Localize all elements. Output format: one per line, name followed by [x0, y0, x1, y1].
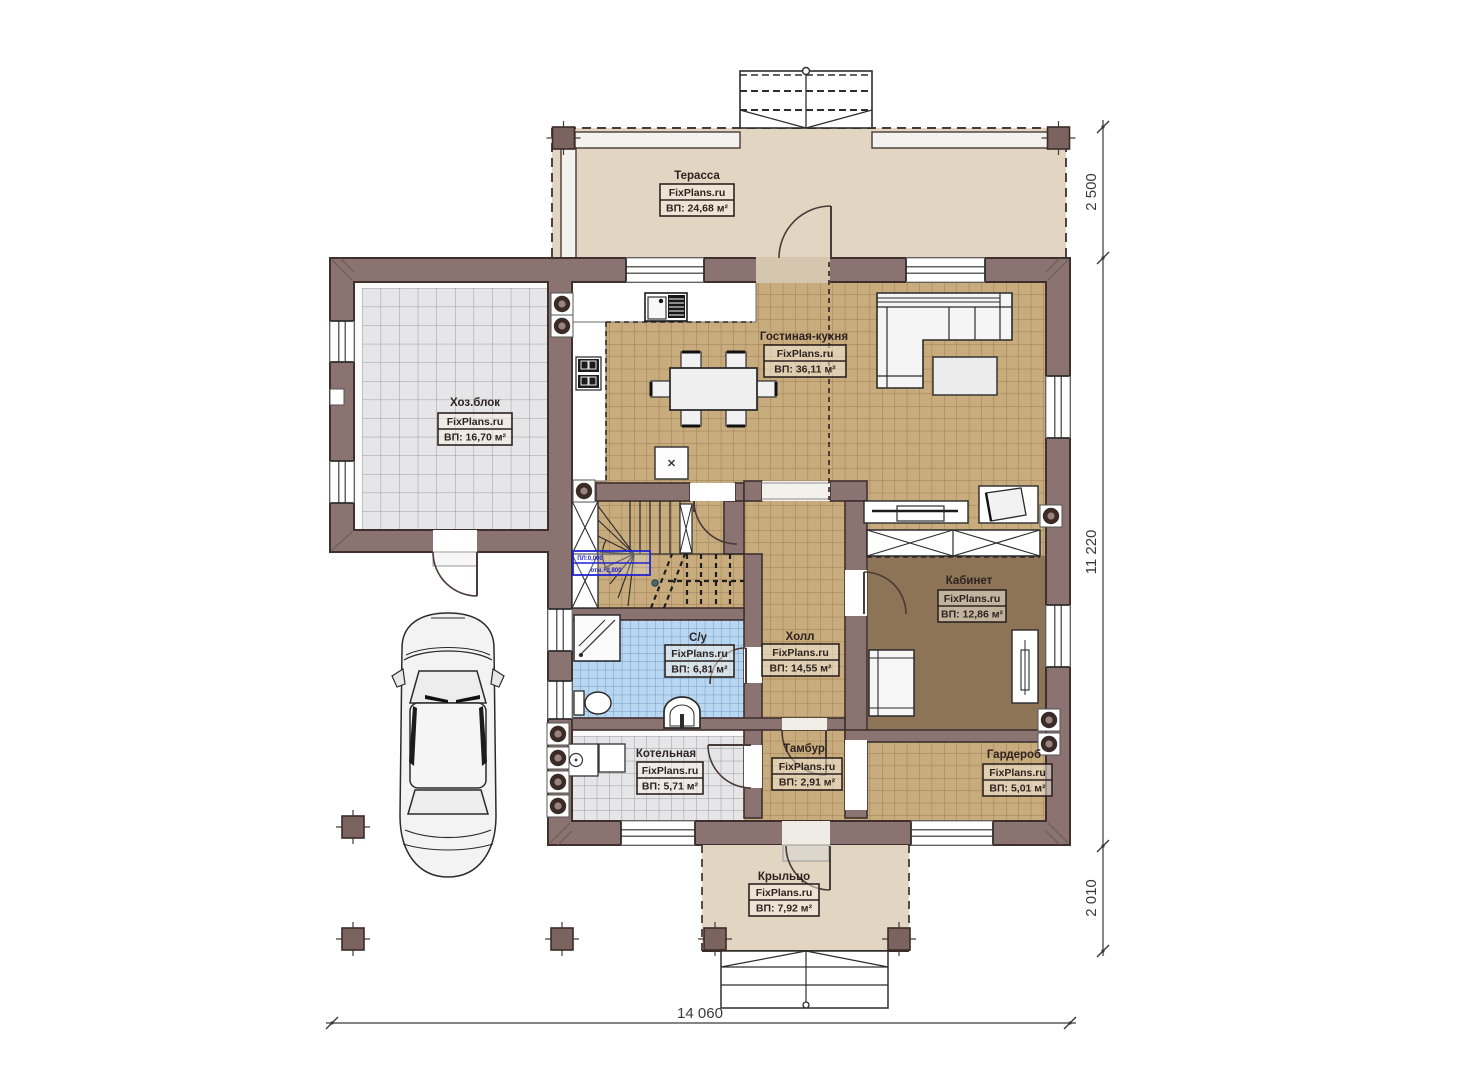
svg-text:FixPlans.ru: FixPlans.ru — [447, 416, 504, 428]
svg-text:FixPlans.ru: FixPlans.ru — [669, 187, 726, 199]
svg-text:Хоз.блок: Хоз.блок — [450, 397, 500, 409]
svg-text:14 060: 14 060 — [677, 1005, 723, 1022]
svg-text:ПЛ:0,000: ПЛ:0,000 — [577, 556, 603, 562]
svg-text:Холл: Холл — [786, 631, 815, 643]
svg-text:С/у: С/у — [689, 632, 708, 644]
svg-text:FixPlans.ru: FixPlans.ru — [642, 765, 699, 777]
svg-text:Кабинет: Кабинет — [946, 575, 993, 587]
svg-text:FixPlans.ru: FixPlans.ru — [777, 348, 834, 360]
svg-text:ВП: 16,70 м²: ВП: 16,70 м² — [444, 432, 507, 444]
svg-text:ВП: 14,55 м²: ВП: 14,55 м² — [769, 663, 832, 675]
svg-text:Гардероб: Гардероб — [987, 749, 1041, 761]
svg-text:Крыльцо: Крыльцо — [758, 871, 810, 883]
svg-text:FixPlans.ru: FixPlans.ru — [989, 767, 1046, 779]
svg-text:FixPlans.ru: FixPlans.ru — [671, 648, 728, 660]
svg-text:ВП: 36,11 м²: ВП: 36,11 м² — [774, 364, 836, 376]
svg-text:Терасса: Терасса — [674, 170, 720, 182]
svg-text:ВП: 5,71 м²: ВП: 5,71 м² — [642, 781, 699, 793]
svg-text:ВП: 24,68 м²: ВП: 24,68 м² — [666, 203, 729, 215]
svg-text:ВП: 2,91 м²: ВП: 2,91 м² — [779, 777, 836, 789]
svg-text:2 500: 2 500 — [1083, 173, 1100, 211]
svg-text:ВП: 12,86 м²: ВП: 12,86 м² — [941, 609, 1004, 621]
svg-text:Котельная: Котельная — [636, 748, 696, 760]
svg-text:11 220: 11 220 — [1083, 530, 1100, 575]
svg-text:FixPlans.ru: FixPlans.ru — [944, 593, 1001, 605]
svg-text:Тамбур: Тамбур — [783, 743, 825, 755]
svg-text:2 010: 2 010 — [1083, 879, 1100, 917]
svg-text:ВП: 5,01 м²: ВП: 5,01 м² — [989, 783, 1046, 795]
svg-text:FixPlans.ru: FixPlans.ru — [756, 887, 813, 899]
svg-text:ВП: 6,81 м²: ВП: 6,81 м² — [671, 664, 728, 676]
svg-text:FixPlans.ru: FixPlans.ru — [772, 647, 829, 659]
svg-text:FixPlans.ru: FixPlans.ru — [779, 761, 836, 773]
svg-text:Гостиная-кухня: Гостиная-кухня — [760, 331, 848, 343]
svg-text:отм.+2,800: отм.+2,800 — [590, 568, 622, 574]
svg-text:ВП: 7,92 м²: ВП: 7,92 м² — [756, 903, 813, 915]
